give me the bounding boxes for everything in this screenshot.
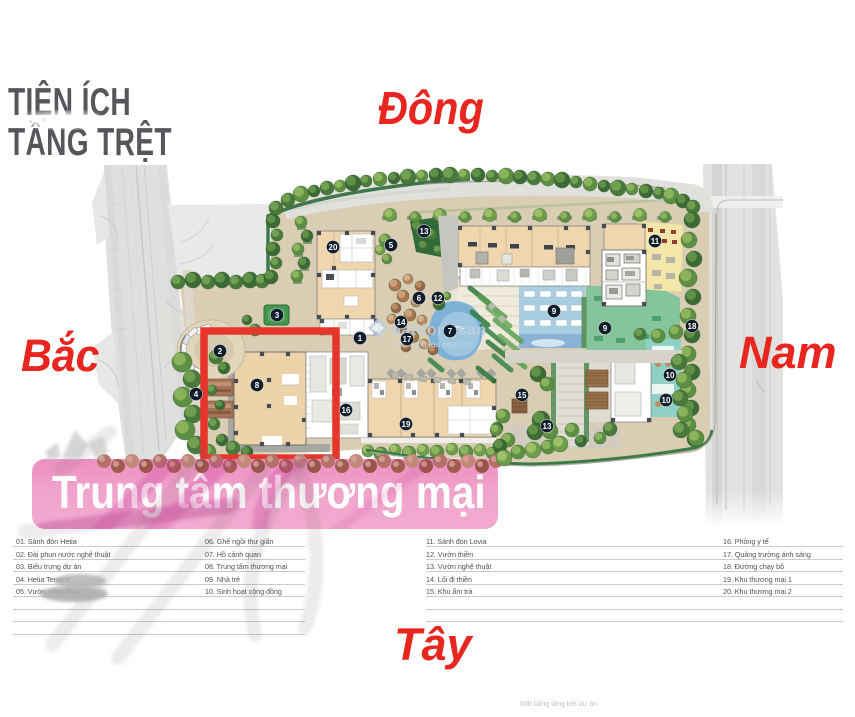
svg-text:11: 11	[651, 237, 660, 246]
svg-text:17: 17	[403, 335, 412, 344]
svg-text:13: 13	[420, 227, 429, 236]
svg-text:10: 10	[662, 396, 671, 405]
svg-text:14: 14	[397, 318, 406, 327]
svg-text:9: 9	[552, 307, 557, 316]
svg-text:10: 10	[666, 371, 675, 380]
svg-text:13: 13	[543, 422, 552, 431]
svg-text:19: 19	[402, 420, 411, 429]
svg-text:18: 18	[688, 322, 697, 331]
svg-text:1: 1	[358, 334, 363, 343]
svg-text:4: 4	[194, 390, 199, 399]
svg-text:5: 5	[389, 241, 394, 250]
svg-text:15: 15	[518, 391, 527, 400]
svg-text:3: 3	[275, 311, 280, 320]
svg-text:20: 20	[329, 243, 338, 252]
svg-text:6: 6	[417, 294, 422, 303]
svg-text:12: 12	[434, 294, 443, 303]
svg-text:8: 8	[255, 381, 260, 390]
svg-text:7: 7	[448, 327, 453, 336]
svg-text:9: 9	[603, 324, 608, 333]
svg-text:2: 2	[218, 347, 223, 356]
svg-text:16: 16	[342, 406, 351, 415]
